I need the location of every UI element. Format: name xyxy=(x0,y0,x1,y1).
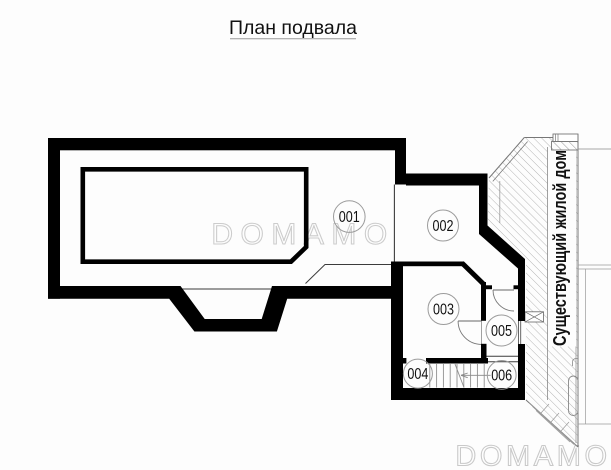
svg-text:004: 004 xyxy=(407,366,428,383)
svg-text:006: 006 xyxy=(491,367,512,384)
svg-text:DOMAMO: DOMAMO xyxy=(455,441,610,470)
svg-text:005: 005 xyxy=(491,323,512,340)
svg-text:003: 003 xyxy=(433,302,454,319)
svg-text:002: 002 xyxy=(433,218,454,235)
svg-text:Существующий жилой дом: Существующий жилой дом xyxy=(550,150,570,346)
svg-text:План подвала: План подвала xyxy=(229,17,357,39)
svg-text:001: 001 xyxy=(339,209,360,226)
svg-text:DOMAMO: DOMAMO xyxy=(211,218,394,251)
